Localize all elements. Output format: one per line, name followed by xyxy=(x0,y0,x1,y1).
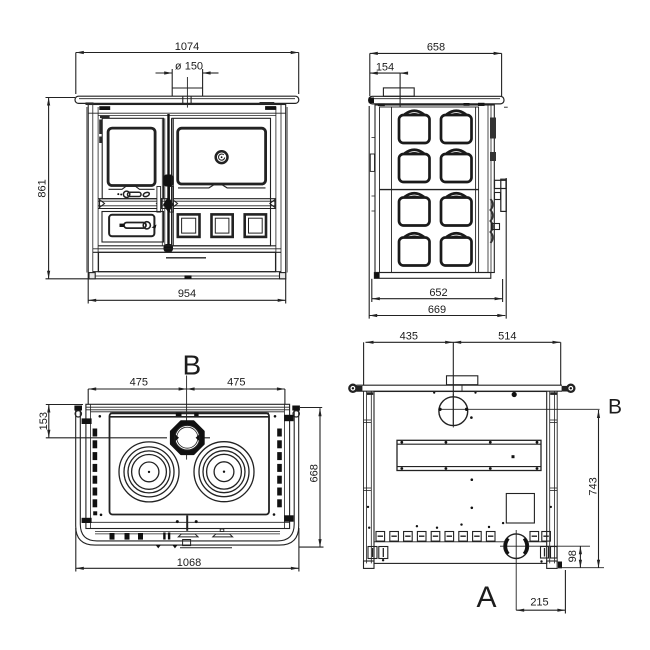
svg-text:475: 475 xyxy=(130,376,148,388)
svg-text:B: B xyxy=(182,350,201,381)
svg-text:153: 153 xyxy=(38,412,50,430)
svg-text:669: 669 xyxy=(428,304,446,316)
svg-text:1074: 1074 xyxy=(175,41,199,53)
svg-text:954: 954 xyxy=(178,288,196,300)
svg-text:1068: 1068 xyxy=(177,557,201,569)
svg-text:435: 435 xyxy=(400,331,418,343)
svg-text:861: 861 xyxy=(36,179,48,197)
svg-text:215: 215 xyxy=(530,597,548,609)
svg-text:658: 658 xyxy=(427,42,445,54)
svg-text:A: A xyxy=(476,581,496,614)
svg-text:ø 150: ø 150 xyxy=(175,61,203,73)
svg-text:475: 475 xyxy=(227,376,245,388)
svg-text:668: 668 xyxy=(309,464,321,482)
svg-text:154: 154 xyxy=(376,62,394,74)
svg-text:652: 652 xyxy=(429,287,447,299)
svg-text:98: 98 xyxy=(567,550,579,562)
svg-text:B: B xyxy=(608,396,622,419)
svg-text:743: 743 xyxy=(588,477,600,495)
svg-text:514: 514 xyxy=(498,331,516,343)
